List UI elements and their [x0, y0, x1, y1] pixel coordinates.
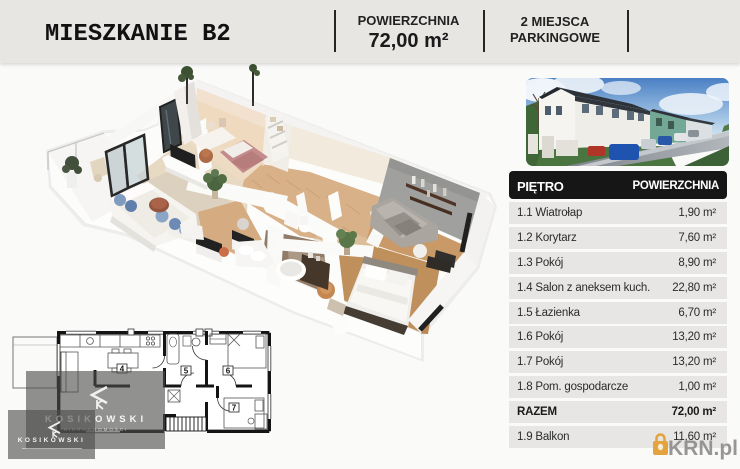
- svg-text:5: 5: [184, 367, 189, 376]
- svg-text:6: 6: [226, 367, 231, 376]
- svg-text:KRN.pl: KRN.pl: [668, 437, 738, 460]
- svg-text:7: 7: [232, 404, 237, 413]
